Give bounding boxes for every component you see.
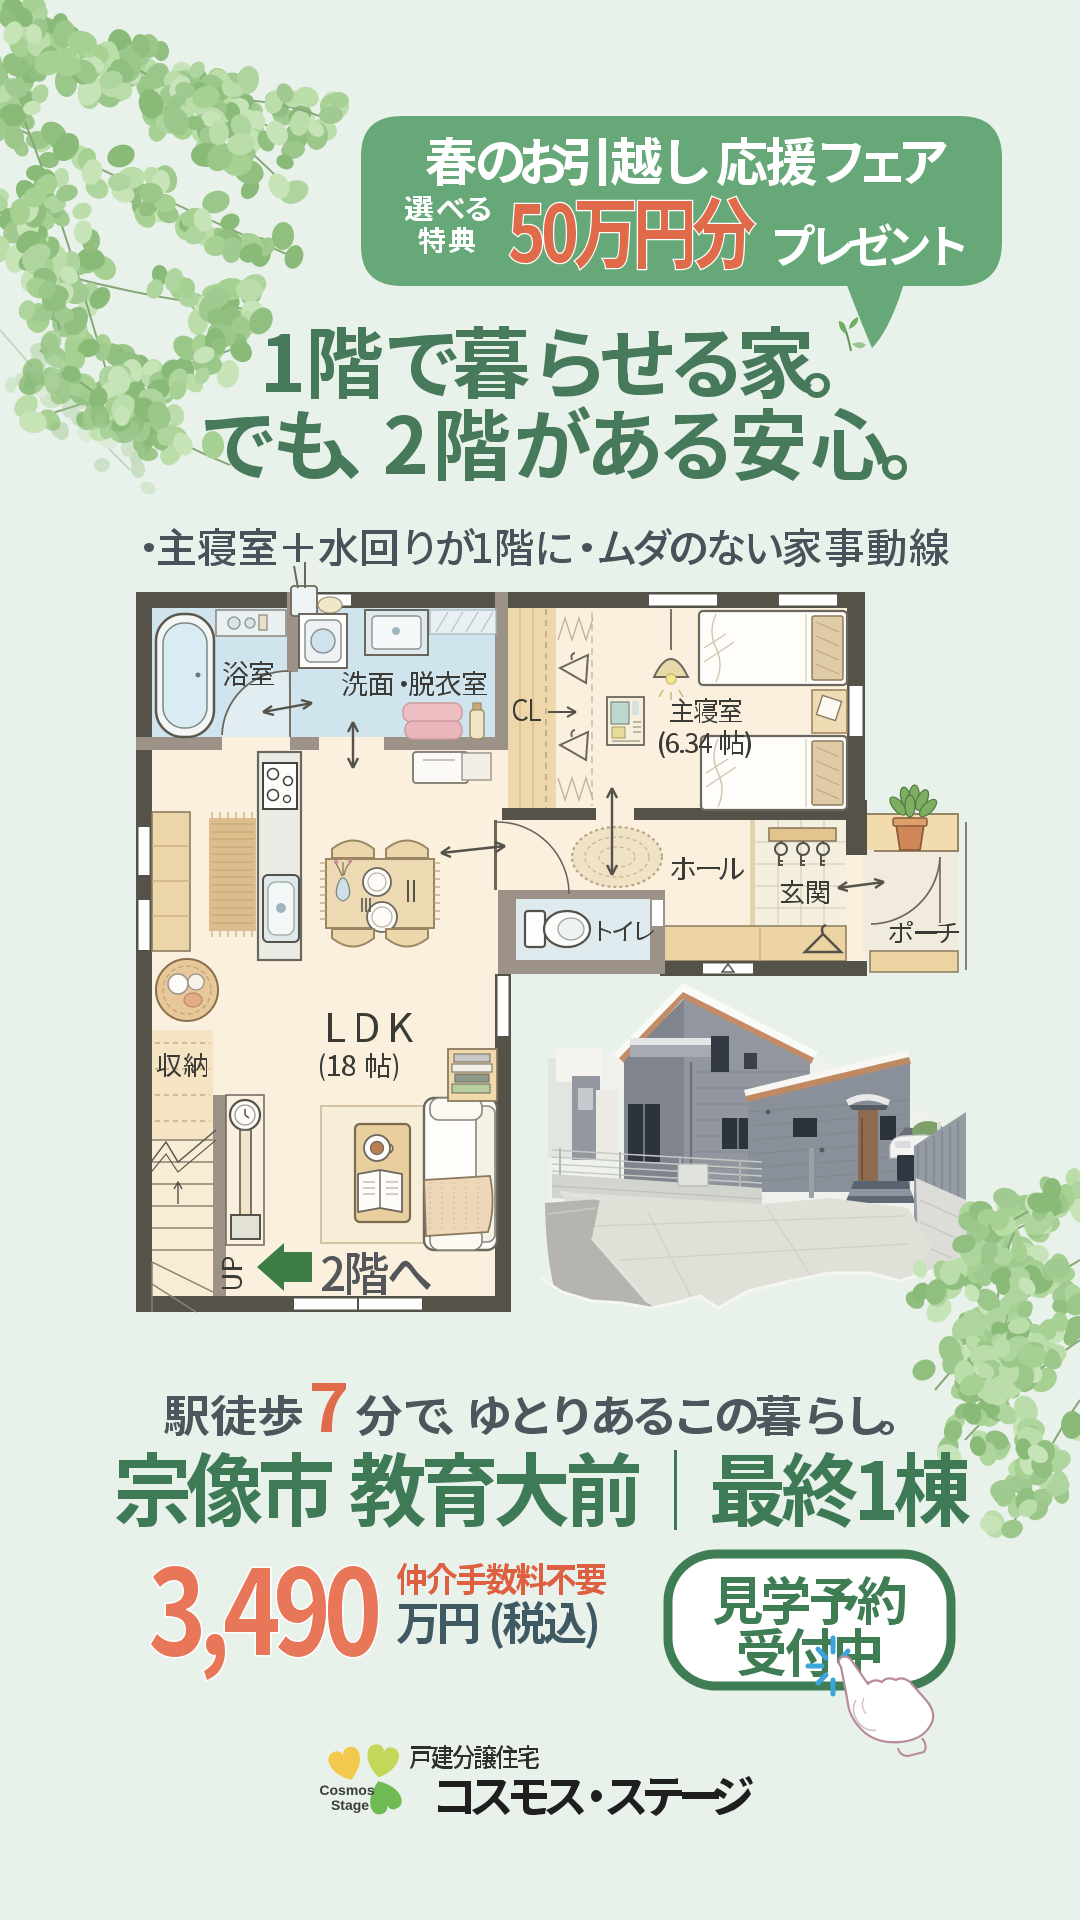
svg-text:Stage: Stage	[331, 1797, 369, 1813]
svg-text:Cosmos: Cosmos	[319, 1782, 374, 1798]
